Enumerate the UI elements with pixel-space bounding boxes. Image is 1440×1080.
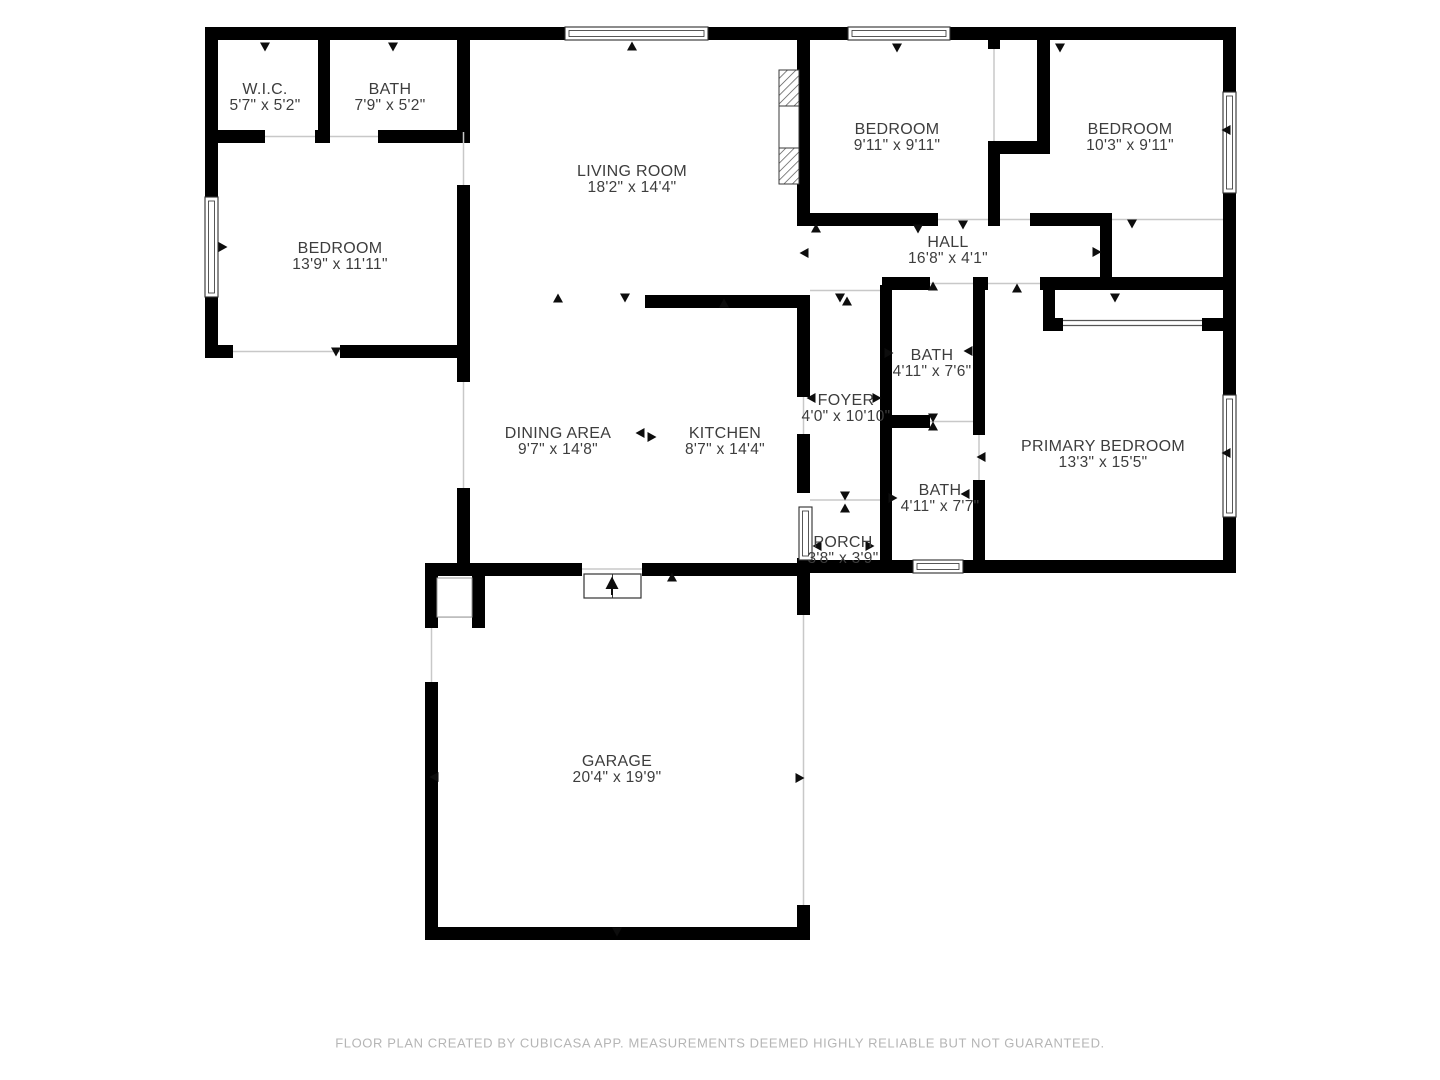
room-dimensions: 4'11" x 7'7" [901,499,980,516]
room-dimensions: 13'3" x 15'5" [1021,455,1185,472]
fireplace-icon [779,70,799,184]
door-arrow-icon [648,432,657,442]
window [913,560,963,573]
room-dimensions: 8'7" x 14'4" [685,442,765,459]
room-label-bedroom-left: BEDROOM 13'9" x 11'11" [292,240,388,274]
wall [973,285,985,435]
room-dimensions: 18'2" x 14'4" [577,180,687,197]
room-name: GARAGE [573,753,662,770]
wall [642,563,810,576]
room-name: KITCHEN [685,425,765,442]
room-dimensions: 4'0" x 10'10" [802,409,891,426]
wall [963,560,1223,573]
room-name: BEDROOM [292,240,388,257]
walls [205,27,1236,940]
door-arrow-icon [260,43,270,52]
door-arrow-icon [958,221,968,230]
wall [425,682,438,940]
wall [1043,287,1055,320]
wall [988,37,1000,49]
wall [1037,37,1050,154]
room-label-garage: GARAGE 20'4" x 19'9" [573,753,662,787]
wall [218,130,265,143]
floor-plan: W.I.C. 5'7" x 5'2" BATH 7'9" x 5'2" LIVI… [0,0,1440,1080]
room-label-hall: HALL 16'8" x 4'1" [908,234,988,268]
room-label-kitchen: KITCHEN 8'7" x 14'4" [685,425,765,459]
wall [1202,318,1223,331]
wall [1030,213,1112,226]
room-name: PORCH [807,534,878,551]
door-arrow-icon [840,504,850,513]
door-arrow-icon [388,43,398,52]
window [848,27,950,40]
room-dimensions: 13'9" x 11'11" [292,257,388,274]
room-name: BATH [901,482,980,499]
wall [457,27,470,132]
wall [318,40,330,130]
door-arrow-icon [219,242,228,252]
room-name: HALL [908,234,988,251]
wall [425,563,438,628]
wall [797,434,810,493]
room-name: LIVING ROOM [577,163,687,180]
door-openings [233,49,1223,905]
room-name: FOYER [802,392,891,409]
door-arrow-icon [1127,220,1137,229]
wall [205,345,233,358]
room-dimensions: 9'11" x 9'11" [854,138,941,155]
door-arrow-icon [840,492,850,501]
door-arrow-icon [977,452,986,462]
wall [1223,517,1236,573]
door-arrows [219,42,1231,937]
wall [805,213,938,226]
door-arrow-icon [553,294,563,303]
door-arrow-icon [1110,294,1120,303]
room-label-foyer: FOYER 4'0" x 10'10" [802,392,891,426]
door-arrow-icon [636,428,645,438]
wall [205,27,218,197]
wall [472,563,485,628]
room-label-porch: PORCH 3'8" x 3'9" [807,534,878,568]
room-dimensions: 20'4" x 19'9" [573,770,662,787]
room-label-bath-middle: BATH 4'11" x 7'6" [893,347,972,381]
wall [340,345,470,358]
wall [1223,193,1236,395]
room-dimensions: 9'7" x 14'8" [505,442,611,459]
room-name: BATH [354,81,425,98]
room-dimensions: 3'8" x 3'9" [807,551,878,568]
floor-plan-drawing [0,0,1440,1080]
wall [1040,277,1223,290]
door-arrow-icon [835,294,845,303]
room-dimensions: 5'7" x 5'2" [229,98,300,115]
door-arrow-icon [620,294,630,303]
wall [797,295,810,397]
door-arrow-icon [800,248,809,258]
wall [315,130,330,143]
room-label-living-room: LIVING ROOM 18'2" x 14'4" [577,163,687,197]
wall [708,27,848,40]
room-name: BEDROOM [1086,121,1174,138]
room-label-bedroom-right: BEDROOM 10'3" x 9'11" [1086,121,1174,155]
room-dimensions: 10'3" x 9'11" [1086,138,1174,155]
window [1223,92,1236,193]
room-name: BATH [893,347,972,364]
room-label-primary-bedroom: PRIMARY BEDROOM 13'3" x 15'5" [1021,438,1185,472]
room-name: BEDROOM [854,121,941,138]
room-dimensions: 16'8" x 4'1" [908,251,988,268]
wall [1043,318,1063,331]
room-label-dining-area: DINING AREA 9'7" x 14'8" [505,425,611,459]
window [205,197,218,297]
door-arrow-icon [842,297,852,306]
door-arrow-icon [892,44,902,53]
wall [882,277,930,290]
door-arrow-icon [1012,284,1022,293]
room-label-wic: W.I.C. 5'7" x 5'2" [229,81,300,115]
wall [797,563,810,615]
door-arrow-icon [889,493,898,503]
wall [457,488,470,568]
window [565,27,708,40]
room-dimensions: 4'11" x 7'6" [893,364,972,381]
room-name: DINING AREA [505,425,611,442]
door-arrow-icon [913,225,923,234]
room-label-bath-lower: BATH 4'11" x 7'7" [901,482,980,516]
room-label-bath-top: BATH 7'9" x 5'2" [354,81,425,115]
wall [1223,27,1236,92]
room-label-bedroom-middle: BEDROOM 9'11" x 9'11" [854,121,941,155]
room-name: PRIMARY BEDROOM [1021,438,1185,455]
door-arrow-icon [627,42,637,51]
disclaimer-text: FLOOR PLAN CREATED BY CUBICASA APP. MEAS… [335,1036,1105,1051]
room-dimensions: 7'9" x 5'2" [354,98,425,115]
wall [378,130,470,143]
garage-closet [437,578,472,617]
closet-sliding-doors [1063,321,1202,326]
wall [425,563,582,576]
wall [797,905,810,940]
wall [457,185,470,382]
room-name: W.I.C. [229,81,300,98]
wall [880,285,892,573]
entry-steps-icon [584,574,641,598]
door-arrow-icon [1055,44,1065,53]
wall [205,27,565,40]
